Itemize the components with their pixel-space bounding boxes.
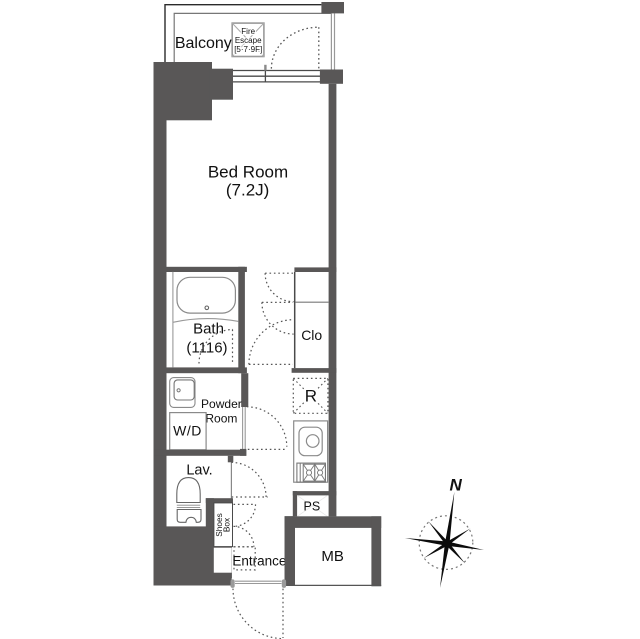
svg-text:Lav.: Lav. bbox=[186, 463, 212, 479]
svg-text:Fire: Fire bbox=[241, 27, 255, 36]
svg-text:PS: PS bbox=[304, 500, 321, 514]
svg-text:Entrance: Entrance bbox=[232, 554, 286, 569]
svg-text:(7.2J): (7.2J) bbox=[226, 180, 269, 199]
svg-text:Balcony: Balcony bbox=[175, 35, 232, 52]
svg-text:Clo: Clo bbox=[301, 327, 322, 343]
svg-text:Escape: Escape bbox=[235, 36, 262, 45]
svg-text:N: N bbox=[450, 476, 463, 495]
svg-text:R: R bbox=[305, 387, 317, 406]
svg-text:Room: Room bbox=[205, 412, 237, 426]
svg-text:Bed Room: Bed Room bbox=[208, 162, 288, 181]
svg-text:W/D: W/D bbox=[173, 422, 202, 438]
svg-text:Powder: Powder bbox=[201, 397, 242, 411]
svg-text:[5·7·9F]: [5·7·9F] bbox=[234, 45, 262, 54]
svg-text:Bath: Bath bbox=[193, 321, 224, 338]
svg-text:MB: MB bbox=[321, 548, 344, 565]
svg-text:Box: Box bbox=[221, 517, 231, 532]
